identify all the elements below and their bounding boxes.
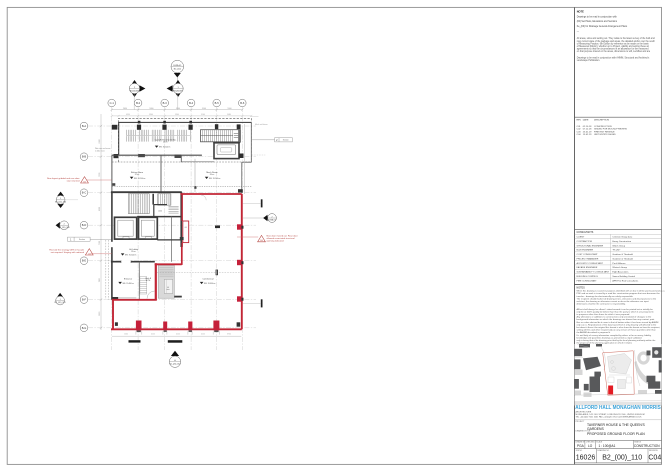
svg-text:1 : 100@A1: 1 : 100@A1 xyxy=(599,444,616,448)
svg-text:Wintech Group: Wintech Group xyxy=(612,266,627,269)
svg-text:06: 06 xyxy=(185,227,187,229)
svg-text:to purposes other than those f: to purposes other than those for which i… xyxy=(577,313,631,316)
svg-text:C04: C04 xyxy=(83,181,86,183)
svg-text:B2_(20)_300: B2_(20)_300 xyxy=(59,227,70,229)
svg-text:not required. Staying with red: not required. Staying with reduced xyxy=(51,251,85,254)
svg-text:but about it there it be origi: but about it there it be original this f… xyxy=(577,326,661,329)
svg-text:07.12.18: 07.12.18 xyxy=(583,129,592,131)
svg-text:REV: REV xyxy=(577,120,582,122)
svg-text:4125: 4125 xyxy=(151,333,155,335)
svg-text:dimensions shall be the contra: dimensions shall be the contractor is re… xyxy=(577,303,627,306)
svg-text:Commercial: Commercial xyxy=(202,277,214,280)
svg-text:B-D: B-D xyxy=(82,223,87,227)
svg-text:B-A: B-A xyxy=(82,124,87,128)
svg-text:2: 2 xyxy=(64,224,65,226)
svg-text:PROPOSED GROUND FLOOR PLAN: PROPOSED GROUND FLOOR PLAN xyxy=(587,432,645,436)
svg-text:B.WA.05: B.WA.05 xyxy=(173,64,182,67)
svg-text:on that purpose intered on the: on that purpose intered on the areas, di… xyxy=(577,50,651,53)
svg-text:JOB NO: JOB NO xyxy=(576,450,583,452)
svg-text:When this drawing is issued in: When this drawing is issued in purposes … xyxy=(577,290,666,293)
svg-text:Criterion Group (CL): Criterion Group (CL) xyxy=(612,236,632,239)
svg-text:Gardiner & Theobald: Gardiner & Theobald xyxy=(612,258,633,261)
svg-text:CONTRACTOR: CONTRACTOR xyxy=(577,240,593,243)
svg-text:BUILDING CONTROL: BUILDING CONTROL xyxy=(577,276,599,278)
svg-text:1500: 1500 xyxy=(124,333,128,335)
svg-text:SFL 70.500 m: SFL 70.500 m xyxy=(125,254,137,256)
svg-text:B2(20)305: B2(20)305 xyxy=(173,90,183,92)
svg-text:B2_(20)_300: B2_(20)_300 xyxy=(55,202,66,204)
svg-text:B-B: B-B xyxy=(82,155,87,159)
svg-text:ALLFORD HALL MONAGHAN MORRIS: ALLFORD HALL MONAGHAN MORRIS xyxy=(575,405,661,411)
svg-text:B-3: B-3 xyxy=(163,101,168,105)
svg-text:may current state of the packa: may current state of the package and are… xyxy=(577,40,656,43)
svg-text:stair returned: stair returned xyxy=(67,179,81,182)
svg-text:files or colour derived do it: files or colour derived do it cover to t… xyxy=(577,321,659,324)
svg-text:C04: C04 xyxy=(648,454,661,461)
svg-text:4950: 4950 xyxy=(126,114,130,116)
svg-text:SFL 70.500 m: SFL 70.500 m xyxy=(134,178,146,180)
svg-text:5300: 5300 xyxy=(149,108,153,110)
svg-text:5100: 5100 xyxy=(228,108,232,110)
svg-text:All areas, sizes and setting o: All areas, sizes and setting out. They r… xyxy=(577,37,656,40)
svg-text:B-4: B-4 xyxy=(189,101,194,105)
svg-text:The recipient should market al: The recipient should market all drawing … xyxy=(577,297,657,300)
svg-text:5100: 5100 xyxy=(201,114,205,116)
svg-text:B2_(20)_310: B2_(20)_310 xyxy=(170,364,181,366)
svg-text:TEL +44 (0)20 7251 5261 FAX +4: TEL +44 (0)20 7251 5261 FAX +44 (0)20 72… xyxy=(576,415,643,418)
svg-text:CLIENT: CLIENT xyxy=(577,237,585,239)
svg-text:B-5: B-5 xyxy=(215,101,220,105)
svg-text:2: 2 xyxy=(271,216,272,218)
svg-text:SUSTAINABILITY CONSULTANT: SUSTAINABILITY CONSULTANT xyxy=(577,271,610,274)
svg-text:only is being that of be drawi: only is being that of be drawing prior t… xyxy=(577,339,657,342)
svg-text:7100: 7100 xyxy=(99,241,101,245)
svg-text:6100: 6100 xyxy=(99,139,101,143)
svg-text:16026: 16026 xyxy=(576,454,596,461)
svg-text:Mesh rail above: Mesh rail above xyxy=(255,124,268,126)
svg-text:Drawings to be read in conjunc: Drawings to be read in conjunction with xyxy=(577,16,618,19)
svg-text:DESCRIPTION: DESCRIPTION xyxy=(594,120,609,122)
svg-text:FIRE EXIT REISSUE: FIRE EXIT REISSUE xyxy=(594,131,615,133)
svg-text:5080: 5080 xyxy=(227,114,231,116)
svg-text:DATE: DATE xyxy=(583,119,589,122)
svg-text:C-1: C-1 xyxy=(110,101,115,105)
svg-text:1: 1 xyxy=(60,198,61,200)
svg-text:SFL 70.500 m: SFL 70.500 m xyxy=(159,147,171,149)
svg-text:Any alterations or additions t: Any alterations or additions to construc… xyxy=(577,316,652,319)
svg-text:02.10.18: 02.10.18 xyxy=(583,126,592,128)
svg-text:opening indicated: opening indicated xyxy=(267,240,285,243)
svg-text:46 m²: 46 m² xyxy=(163,141,168,144)
svg-text:7800: 7800 xyxy=(99,278,101,282)
svg-text:7200: 7200 xyxy=(99,173,101,177)
svg-text:(00) Set Plans, Elevations and: (00) Set Plans, Elevations and Sections xyxy=(577,20,618,23)
svg-text:B-6: B-6 xyxy=(240,101,245,105)
svg-text:13.02.19: 13.02.19 xyxy=(583,134,592,136)
svg-text:B-E: B-E xyxy=(82,259,87,263)
svg-text:SFL 70.800 m: SFL 70.800 m xyxy=(204,283,216,285)
svg-text:3750: 3750 xyxy=(227,333,231,335)
svg-text:B-G: B-G xyxy=(82,326,87,330)
svg-text:All but shall always be affron: All but shall always be affront / stated… xyxy=(577,308,653,311)
svg-text:Drawings to be read in conjunc: Drawings to be read in conjunction with … xyxy=(577,56,650,59)
svg-text:New door moved out. Rear door: New door moved out. Rear door xyxy=(267,234,298,237)
svg-text:B2(20)307: B2(20)307 xyxy=(130,90,140,92)
svg-text:C04: C04 xyxy=(88,253,91,255)
svg-text:background information on whic: background information on which the draw… xyxy=(577,318,655,321)
svg-text:A.04: A.04 xyxy=(159,210,163,213)
svg-text:5650: 5650 xyxy=(99,312,101,316)
svg-text:It's not likely of survey info: It's not likely of survey information co… xyxy=(577,334,652,337)
svg-text:Walsh Group: Walsh Group xyxy=(612,244,625,247)
svg-text:B-2: B-2 xyxy=(136,101,141,105)
svg-text:FACADE ENGINEER: FACADE ENGINEER xyxy=(577,266,598,269)
svg-text:ACOUSTIC CONSULTANT: ACOUSTIC CONSULTANT xyxy=(577,262,604,265)
svg-text:37 m²: 37 m² xyxy=(135,173,140,176)
svg-text:Landscape Publication.: Landscape Publication. xyxy=(577,59,601,62)
svg-text:W. St.: W. St. xyxy=(146,279,151,282)
svg-text:Sweco Building Control: Sweco Building Control xyxy=(612,275,635,278)
svg-text:PDF and an work is issued by a: PDF and an work is issued by a read this… xyxy=(577,292,660,295)
svg-text:only can is. Reproduction of t: only can is. Reproduction of the data ba… xyxy=(577,323,658,326)
svg-text:AFR Fire Risk Consultants: AFR Fire Risk Consultants xyxy=(612,279,639,282)
svg-text:SFL 70.450 m: SFL 70.450 m xyxy=(123,283,135,285)
svg-text:UNIT ENTRY ISSUED: UNIT ENTRY ISSUED xyxy=(594,134,616,136)
svg-text:ARCHITECTURE: ARCHITECTURE xyxy=(576,410,592,413)
svg-text:Revised fire strategy: ATS in: Revised fire strategy: ATS in facade xyxy=(49,248,84,251)
svg-text:CONSULTANTS: CONSULTANTS xyxy=(577,231,594,234)
svg-text:of Measuring Practice, 6th Edi: of Measuring Practice, 6th Edition by re… xyxy=(577,42,650,45)
svg-text:STRUCTURAL ENGINEER: STRUCTURAL ENGINEER xyxy=(577,244,604,247)
svg-text:Henry Construction: Henry Construction xyxy=(612,240,632,243)
svg-text:Section: Section xyxy=(79,238,85,241)
svg-text:only be at 100% quality be bef: only be at 100% quality be before than t… xyxy=(577,310,655,313)
svg-text:NOTE: NOTE xyxy=(577,10,584,14)
svg-text:2650: 2650 xyxy=(123,108,127,110)
svg-text:REVISION: REVISION xyxy=(649,450,658,452)
svg-text:of Measured (Metric), whether: of Measured (Metric), whether up to Proj… xyxy=(577,45,650,48)
svg-text:the AHMM described is prepared: the AHMM described is prepared it xyxy=(577,331,611,334)
svg-text:New layout gridded and rear do: New layout gridded and rear door xyxy=(47,177,80,180)
svg-text:transfer - drawings be electro: transfer - drawings be electronically ar… xyxy=(577,295,634,298)
svg-text:Ke_(00) for Drainage General A: Ke_(00) for Drainage General Arrangement… xyxy=(577,25,628,28)
svg-text:M+E ENGINEER: M+E ENGINEER xyxy=(577,250,594,252)
svg-text:PROJECT: PROJECT xyxy=(576,421,586,423)
svg-text:allowed associated structural: allowed associated structural xyxy=(267,237,296,240)
svg-text:DRAWING NO: DRAWING NO xyxy=(597,449,609,452)
svg-text:B2_(20)_301: B2_(20)_301 xyxy=(55,302,66,304)
svg-text:26 m²: 26 m² xyxy=(210,173,215,176)
svg-text:LO: LO xyxy=(588,444,593,448)
svg-text:Section: Section xyxy=(283,139,289,142)
svg-text:B-F: B-F xyxy=(82,298,87,302)
svg-text:Gardiner & Theobald: Gardiner & Theobald xyxy=(612,253,633,256)
svg-text:CONSTRUCTION: CONSTRUCTION xyxy=(594,126,612,128)
svg-text:B.WA.07: B.WA.07 xyxy=(268,219,275,222)
svg-text:COST CONSULTANT: COST CONSULTANT xyxy=(577,253,599,256)
svg-text:4125: 4125 xyxy=(201,333,205,335)
svg-text:ISSUED FOR MOCKUP REVIEW: ISSUED FOR MOCKUP REVIEW xyxy=(594,129,628,131)
svg-text:Paul Gillieron: Paul Gillieron xyxy=(612,262,626,265)
svg-text:1: 1 xyxy=(60,299,61,301)
svg-text:6500: 6500 xyxy=(99,207,101,211)
svg-text:SFL 70.500 m: SFL 70.500 m xyxy=(209,178,221,180)
svg-text:5300: 5300 xyxy=(175,114,179,116)
svg-text:setting will this and other re: setting will this and other respectively… xyxy=(577,329,657,332)
svg-text:to bike store: to bike store xyxy=(95,149,105,152)
svg-text:agreements so that the circums: agreements so that the circumstances in … xyxy=(577,48,650,51)
svg-text:architect, the drawing or othe: architect, the drawing or otherwise curr… xyxy=(577,300,649,303)
svg-text:PGA: PGA xyxy=(577,444,585,448)
svg-text:5100: 5100 xyxy=(202,108,206,110)
svg-text:knowledge and quantities drawi: knowledge and quantities drawings as pre… xyxy=(577,336,643,339)
svg-text:"FLUID": "FLUID" xyxy=(612,250,620,252)
svg-text:4125: 4125 xyxy=(176,333,180,335)
svg-text:riser: riser xyxy=(166,288,170,291)
svg-text:FIRE CONSULTANT: FIRE CONSULTANT xyxy=(577,279,598,282)
svg-text:B2_(00)_110: B2_(00)_110 xyxy=(602,454,642,461)
svg-text:NOTES: NOTES xyxy=(577,286,586,289)
svg-text:CONSTRUCTION: CONSTRUCTION xyxy=(634,444,660,448)
svg-text:PROJECT MANAGER: PROJECT MANAGER xyxy=(577,258,599,261)
svg-text:B2_(20): B2_(20) xyxy=(174,69,181,71)
svg-text:23 m²: 23 m² xyxy=(131,250,136,253)
svg-text:Entrance: Entrance xyxy=(124,277,133,280)
svg-text:25.01.19: 25.01.19 xyxy=(583,131,592,133)
svg-text:C04: C04 xyxy=(260,240,263,242)
svg-text:Eight Associates: Eight Associates xyxy=(612,271,629,274)
svg-text:B-C: B-C xyxy=(82,191,87,195)
svg-text:5300: 5300 xyxy=(149,114,153,116)
